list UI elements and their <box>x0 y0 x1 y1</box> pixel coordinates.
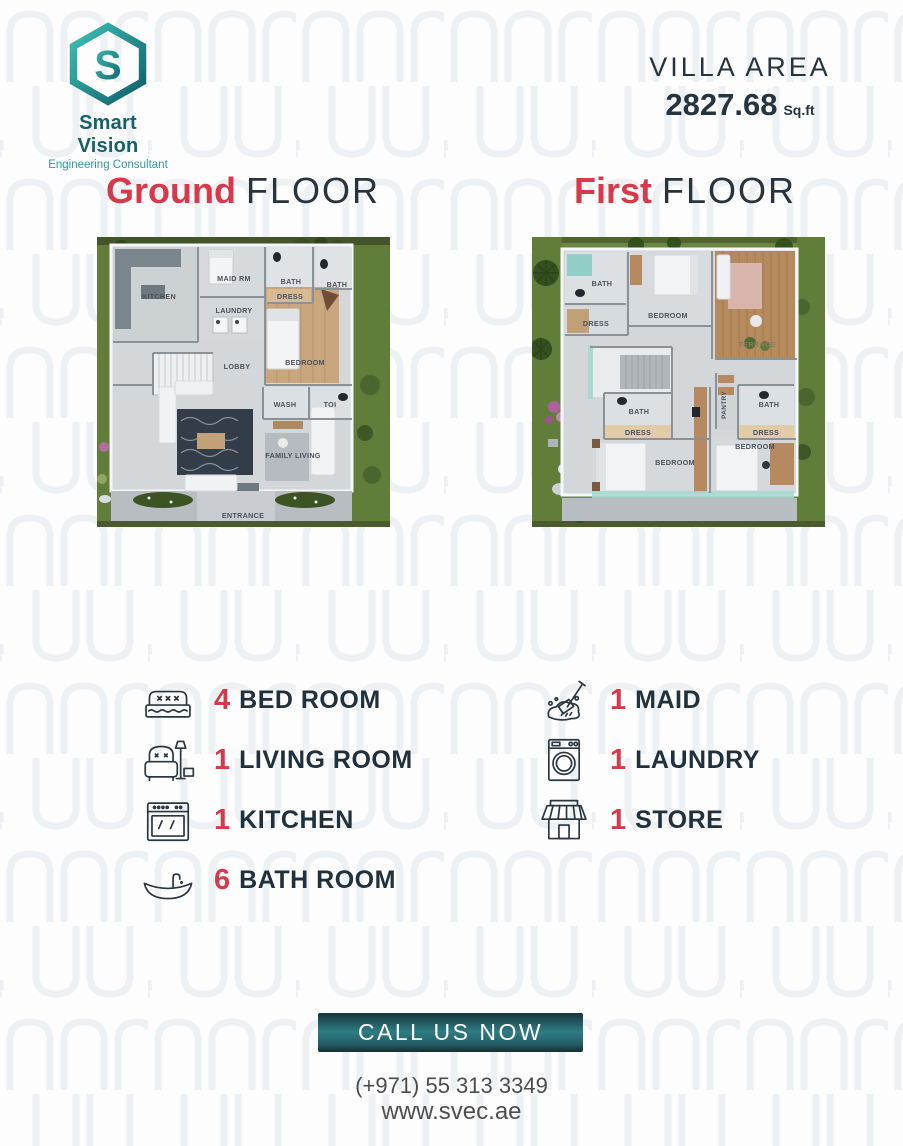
room-label: WASH <box>274 400 297 409</box>
room-label: FAMILY LIVING <box>265 451 321 460</box>
room-label: BEDROOM <box>285 358 325 367</box>
room-label: BATH <box>592 279 613 288</box>
amenities-left-column: 4 BED ROOM 1 LIVING ROOM <box>140 670 500 910</box>
room-label: DRESS <box>583 319 609 328</box>
logo-mark: S <box>58 22 158 106</box>
room-label: PANTRY <box>721 391 728 419</box>
ground-floor-title-rest: FLOOR <box>246 170 380 211</box>
armchair-icon <box>140 736 196 784</box>
bathroom-count: 6 <box>214 864 230 897</box>
storefront-icon <box>536 796 592 844</box>
room-label: LOBBY <box>224 362 251 371</box>
amenity-living-room: 1 LIVING ROOM <box>140 730 500 790</box>
room-label: BATH <box>759 400 780 409</box>
call-us-now-button[interactable]: CALL US NOW <box>318 1013 583 1052</box>
room-label: DRESS <box>277 292 303 301</box>
stove-icon <box>140 796 196 844</box>
logo-letter: S <box>94 42 121 88</box>
bathtub-icon <box>140 856 196 904</box>
washing-machine-icon <box>536 736 592 784</box>
room-label: KITCHEN <box>142 292 176 301</box>
villa-area-label: VILLA AREA <box>618 52 862 83</box>
living-room-label: LIVING ROOM <box>239 746 413 775</box>
bedroom-count: 4 <box>214 684 230 717</box>
phone-number: (+971) 55 313 3349 <box>0 1073 903 1099</box>
amenity-maid: 1 MAID <box>536 670 896 730</box>
bed-icon <box>140 676 196 724</box>
first-floor-title: FirstFLOOR <box>535 170 835 212</box>
villa-area-value: 2827.68 <box>665 87 777 122</box>
first-floor-title-rest: FLOOR <box>662 170 796 211</box>
room-label: ENTRANCE <box>222 511 264 520</box>
maid-label: MAID <box>635 686 701 715</box>
ground-floor-title-accent: Ground <box>106 170 236 211</box>
room-label: MAID RM <box>217 274 251 283</box>
living-room-count: 1 <box>214 744 230 777</box>
kitchen-count: 1 <box>214 804 230 837</box>
villa-flyer: S Smart Vision Engineering Consultant VI… <box>0 0 903 1146</box>
villa-area: VILLA AREA 2827.68Sq.ft <box>618 52 862 123</box>
ground-floor-plan: KITCHEN MAID RM BATH BATH DRESS LAUNDRY … <box>97 237 390 527</box>
maid-count: 1 <box>610 684 626 717</box>
website-url: www.svec.ae <box>0 1098 903 1126</box>
store-count: 1 <box>610 804 626 837</box>
villa-area-unit: Sq.ft <box>783 102 814 118</box>
amenity-bedroom: 4 BED ROOM <box>140 670 500 730</box>
logo-name: Smart Vision <box>46 112 170 158</box>
room-label: DRESS <box>753 428 779 437</box>
room-label: DRESS <box>625 428 651 437</box>
laundry-count: 1 <box>610 744 626 777</box>
room-label: LAUNDRY <box>216 306 253 315</box>
amenity-laundry: 1 LAUNDRY <box>536 730 896 790</box>
room-label: BEDROOM <box>735 442 775 451</box>
room-label: BEDROOM <box>648 311 688 320</box>
mop-icon <box>536 676 592 724</box>
room-label: BEDROOM <box>655 458 695 467</box>
bathroom-label: BATH ROOM <box>239 866 396 895</box>
room-label: BATH <box>281 277 302 286</box>
amenity-kitchen: 1 KITCHEN <box>140 790 500 850</box>
room-label: TOI <box>324 400 337 409</box>
first-floor-plan: BATH BEDROOM DRESS TERRACE BATH DRESS BE… <box>532 237 825 527</box>
amenity-bathroom: 6 BATH ROOM <box>140 850 500 910</box>
store-label: STORE <box>635 806 723 835</box>
room-label: BATH <box>629 407 650 416</box>
first-floor-title-accent: First <box>574 170 652 211</box>
laundry-label: LAUNDRY <box>635 746 760 775</box>
bedroom-label: BED ROOM <box>239 686 381 715</box>
kitchen-label: KITCHEN <box>239 806 354 835</box>
amenity-store: 1 STORE <box>536 790 896 850</box>
ground-floor-title: GroundFLOOR <box>93 170 393 212</box>
room-label: TERRACE <box>739 340 776 349</box>
company-logo: S Smart Vision Engineering Consultant <box>46 22 170 171</box>
amenities-right-column: 1 MAID 1 LAUNDRY <box>536 670 896 850</box>
room-label: BATH <box>327 280 348 289</box>
